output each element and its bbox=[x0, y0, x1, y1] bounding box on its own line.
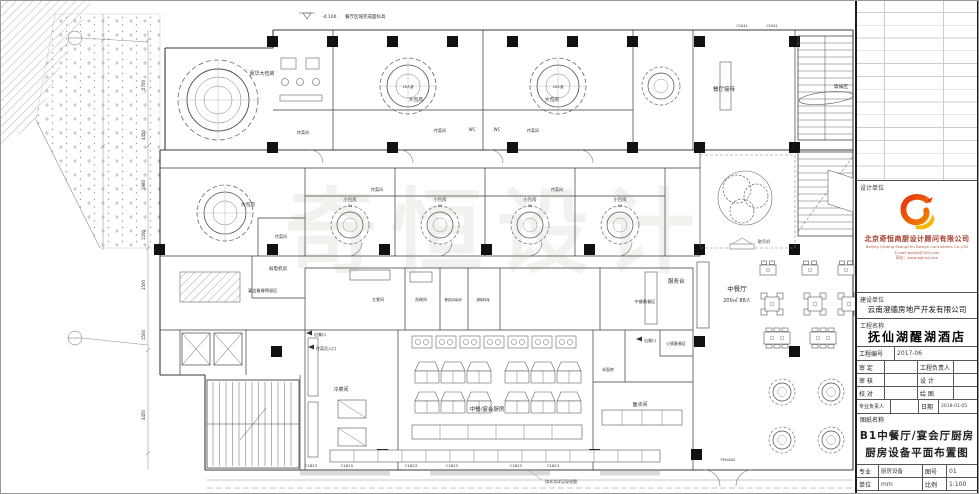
label-dining-info: 200㎡ 88人 bbox=[723, 297, 751, 304]
lead-label: 专业负责人 bbox=[857, 400, 891, 413]
company-name: 北京奇恒商厨设计顾问有限公司 bbox=[857, 234, 977, 244]
design-label: 设 计 bbox=[918, 374, 954, 386]
label-reception: 餐厅接待 bbox=[713, 85, 736, 93]
label-window-code: C1823 bbox=[305, 463, 318, 468]
label-luxury-private: 豪华大包房 bbox=[249, 70, 274, 77]
check-label: 审 核 bbox=[857, 374, 885, 386]
label-door-code: FM1842 bbox=[720, 457, 736, 462]
major-row: 专业 厨房设备 图号 01 bbox=[857, 465, 977, 478]
label-dining: 中餐厅 bbox=[727, 284, 747, 293]
label-window-code: C1823 bbox=[446, 463, 459, 468]
approve-label: 审 定 bbox=[857, 361, 885, 373]
dim-text: 1500 bbox=[141, 279, 146, 290]
draft-value bbox=[954, 387, 977, 399]
label-small-private: 小包房 bbox=[613, 196, 627, 203]
approve-row: 审 定 工程负责人 bbox=[857, 361, 977, 374]
label-prep-hotpot: 火锅备餐区 bbox=[666, 340, 686, 346]
label-meal-out: 出餐口 bbox=[314, 331, 326, 337]
client-section: 建设单位 云南澄德房地产开发有限公司 bbox=[857, 293, 977, 319]
label-small-num: 03 bbox=[528, 204, 533, 208]
label-service-desk: 服务台 bbox=[668, 277, 685, 285]
label-ticket-machine: 取号机 bbox=[758, 238, 770, 244]
lead-value bbox=[891, 400, 919, 413]
label-table-16: 16人桌 bbox=[402, 84, 414, 89]
label-big-private: 大包房 bbox=[241, 201, 256, 208]
stairs-lower-left bbox=[207, 380, 299, 468]
label-pass-room: 传菜间 bbox=[297, 129, 309, 135]
client-name: 云南澄德房地产开发有限公司 bbox=[857, 304, 977, 315]
label-meal-out: 出餐口 bbox=[644, 337, 656, 343]
label-wc: WC bbox=[469, 127, 476, 132]
pm-label: 工程负责人 bbox=[918, 361, 954, 373]
label-pass-room: 传菜间 bbox=[551, 186, 563, 192]
design-unit-section: 设计单位 北京奇恒商厨设计顾问有限公司 Beijing QiHeng Shang… bbox=[857, 181, 977, 293]
service-counter bbox=[697, 262, 709, 328]
dimension-labels: 5700 4450 1980 1200 1500 1500 4450 bbox=[141, 79, 146, 420]
date-label: 日期 bbox=[919, 400, 939, 413]
elevation-marker bbox=[299, 13, 315, 19]
unit-row: 单位 mm 比例 1:100 bbox=[857, 478, 977, 491]
unit-value: mm bbox=[879, 478, 923, 490]
dim-text: 4450 bbox=[141, 409, 146, 420]
major-label: 专业 bbox=[857, 465, 879, 477]
label-cold-room: 冷菜间 bbox=[333, 386, 348, 393]
label-top-code: C1041 bbox=[766, 24, 777, 28]
client-label: 建设单位 bbox=[860, 295, 884, 304]
tree-plaza bbox=[700, 155, 795, 249]
project-no-value: 2017-06 bbox=[895, 347, 977, 360]
label-pass-room: 传菜间 bbox=[371, 186, 383, 192]
label-waiting: 等候区 bbox=[834, 83, 849, 90]
proof-label: 校 对 bbox=[857, 387, 885, 399]
lead-row: 专业负责人 日期 2018-01-05 bbox=[857, 400, 977, 414]
label-staff-entry: 传菜员入口 bbox=[316, 345, 336, 351]
project-name: 抚仙湖醒湖酒店 bbox=[857, 328, 977, 345]
banquet-tables bbox=[178, 58, 680, 244]
drawing-name-line2: 厨房设备平面布置图 bbox=[857, 445, 977, 462]
lounge-furniture bbox=[280, 58, 322, 101]
label-pass-room: 传菜间 bbox=[275, 233, 287, 239]
label-big-private: 大包房 bbox=[545, 96, 560, 103]
drawing-sheet: 5700 4450 1980 1200 1500 1500 4450 bbox=[0, 0, 979, 494]
drawing-name: B1中餐厅/宴会厅厨房 厨房设备平面布置图 bbox=[857, 425, 977, 465]
proof-row: 校 对 绘 图 bbox=[857, 387, 977, 400]
label-rice-store: 米面库 bbox=[602, 366, 614, 372]
check-row: 审 核 设 计 bbox=[857, 374, 977, 387]
approve-value bbox=[885, 361, 918, 373]
title-block: 设计单位 北京奇恒商厨设计顾问有限公司 Beijing QiHeng Shang… bbox=[855, 0, 979, 494]
date-value: 2018-01-05 bbox=[939, 400, 977, 413]
dim-text: 1200 bbox=[141, 229, 146, 240]
label-disinfect: 餐具消毒间 bbox=[445, 297, 463, 302]
reserve-hatch bbox=[180, 272, 240, 302]
dining-tables bbox=[760, 261, 855, 453]
major-value: 厨房设备 bbox=[879, 465, 923, 477]
label-small-num: 01 bbox=[348, 204, 353, 208]
floor-plan-canvas: 5700 4450 1980 1200 1500 1500 4450 bbox=[0, 0, 855, 494]
dim-text: 1980 bbox=[141, 179, 146, 190]
project-no-label: 工程编号 bbox=[857, 347, 895, 360]
label-elevation: -4.100 bbox=[322, 14, 337, 20]
label-weak-power: 弱电机房 bbox=[269, 265, 288, 272]
scale-value: 1:100 bbox=[947, 478, 977, 490]
label-pass-room: 传菜间 bbox=[527, 127, 539, 133]
dim-text: 5700 bbox=[141, 79, 146, 90]
company-website: 网址：www.bjqhsj.com bbox=[857, 255, 977, 261]
exterior-lines bbox=[207, 470, 853, 488]
pm-value bbox=[954, 361, 977, 373]
label-window-code: C1815 bbox=[341, 463, 354, 468]
label-small-num: 02 bbox=[438, 204, 443, 208]
scale-label: 比例 bbox=[923, 478, 947, 490]
label-staple-room: 主食间 bbox=[372, 296, 384, 302]
design-unit-label: 设计单位 bbox=[860, 183, 884, 192]
label-table-16: 16人桌 bbox=[552, 84, 564, 89]
label-main-kitchen: 中餐/宴会厨房 bbox=[470, 405, 505, 413]
drawing-name-label: 图纸名称 bbox=[857, 414, 977, 425]
label-wc: WC bbox=[494, 127, 501, 132]
dim-text: 1500 bbox=[141, 329, 146, 340]
label-elevation-note: 餐厅区域完成面标高 bbox=[345, 13, 386, 20]
drawing-name-line1: B1中餐厅/宴会厅厨房 bbox=[857, 428, 977, 445]
label-top-code: C1041 bbox=[736, 24, 747, 28]
label-small-private: 小包房 bbox=[523, 196, 537, 203]
project-no-row: 工程编号 2017-06 bbox=[857, 347, 977, 361]
label-small-private: 小包房 bbox=[343, 196, 357, 203]
kitchen-equipment bbox=[308, 270, 682, 462]
sheet-no-value: 01 bbox=[947, 465, 977, 477]
label-drain-note: 排水沟详见深化图 bbox=[545, 478, 577, 484]
label-dishwash: 洗碗间 bbox=[415, 296, 427, 302]
dim-text: 4450 bbox=[141, 129, 146, 140]
unit-label: 单位 bbox=[857, 478, 879, 490]
company-name-en: Beijing QiHeng ShangChu Design Consultan… bbox=[857, 244, 977, 250]
elevators bbox=[182, 333, 242, 365]
label-window-code: C1823 bbox=[510, 463, 523, 468]
proof-value bbox=[885, 387, 918, 399]
design-value bbox=[954, 374, 977, 386]
label-prep-chinese: 中餐备餐区 bbox=[635, 298, 656, 305]
label-small-num: 04 bbox=[618, 204, 623, 208]
draft-label: 绘 图 bbox=[918, 387, 954, 399]
label-big-private: 大包房 bbox=[409, 96, 424, 103]
label-pass-room: 传菜间 bbox=[434, 127, 446, 133]
label-window-code: C1823 bbox=[405, 463, 418, 468]
project-section: 工程名称 抚仙湖醒湖酒店 bbox=[857, 319, 977, 347]
label-small-private: 小包房 bbox=[433, 196, 447, 203]
check-value bbox=[885, 374, 918, 386]
label-pastry: 面点间 bbox=[632, 401, 647, 408]
company-logo-icon bbox=[895, 192, 939, 232]
sheet-no-label: 图号 bbox=[923, 465, 947, 477]
label-window-code: C1823 bbox=[547, 463, 560, 468]
label-seasoning: 调味料库 bbox=[476, 297, 490, 302]
label-reserve: 宴会备餐预留区 bbox=[248, 287, 277, 294]
revision-table bbox=[857, 0, 977, 181]
stairs-mid bbox=[798, 152, 853, 236]
